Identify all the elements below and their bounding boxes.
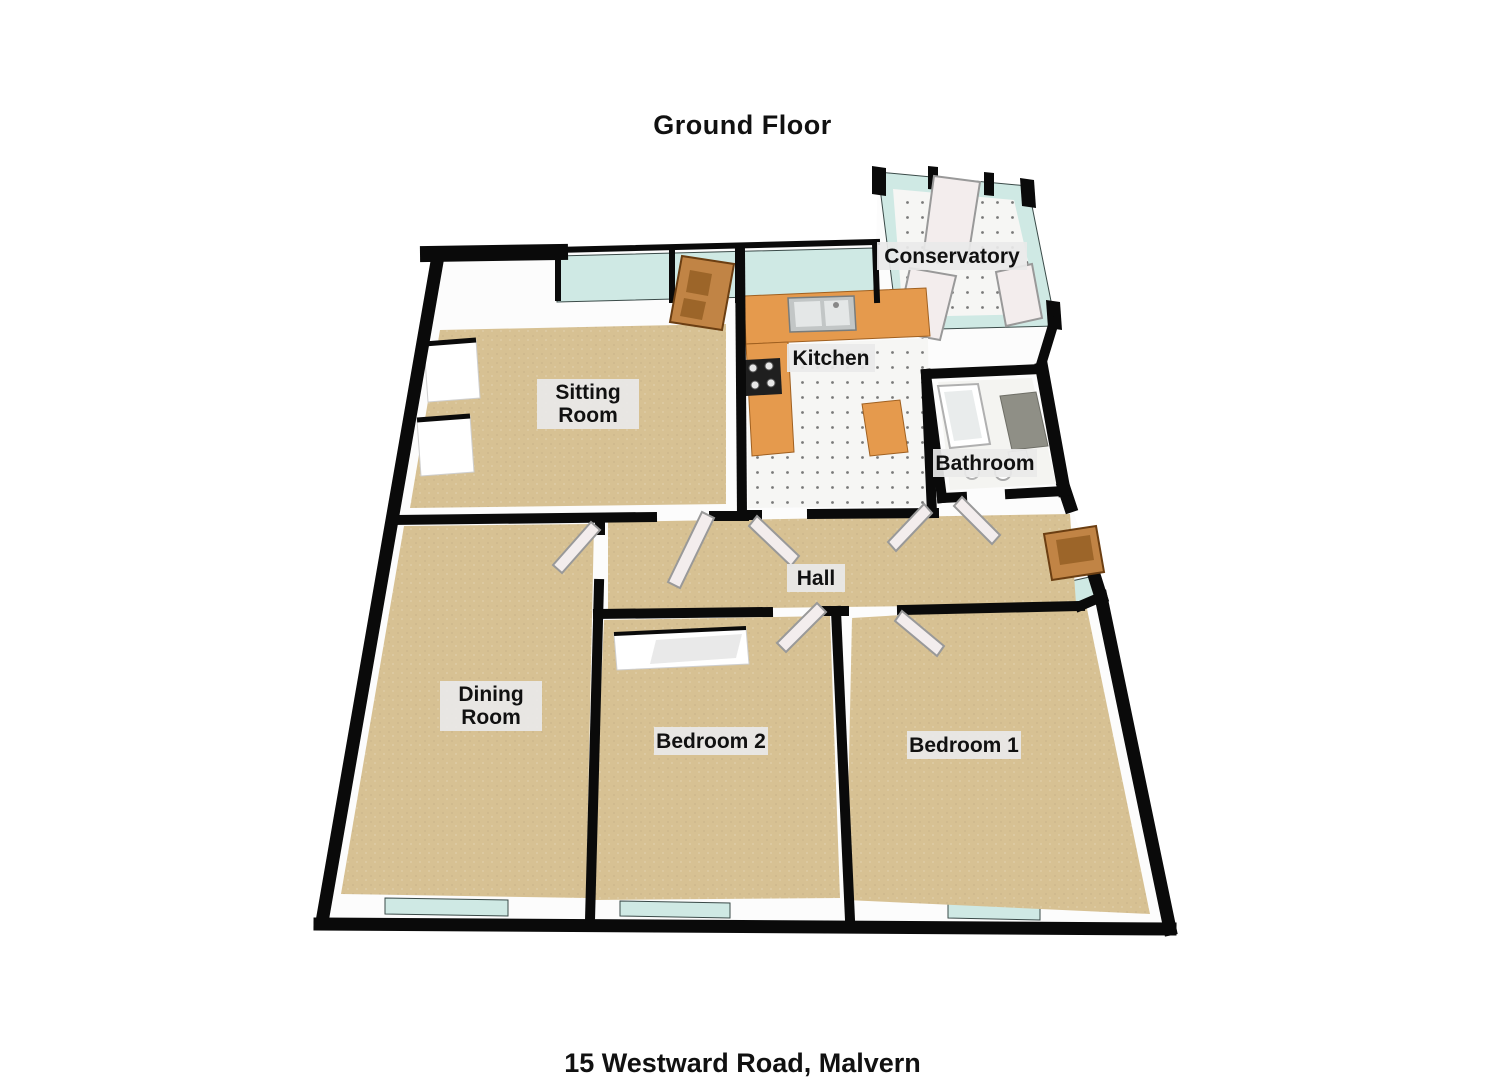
kitchen-counter-right <box>862 400 908 456</box>
label-dining-room-line2: Room <box>461 706 521 729</box>
stove-hob <box>744 358 782 396</box>
door-panel <box>686 270 712 296</box>
wall-segment <box>598 612 768 614</box>
door-panel <box>1056 535 1094 565</box>
sink-faucet <box>833 302 839 308</box>
wall-segment <box>926 369 1042 374</box>
wall-segment <box>902 606 1080 610</box>
label-sitting: Sitting <box>555 381 620 404</box>
wall-segment <box>1010 491 1064 494</box>
label-kitchen: Kitchen <box>792 347 869 370</box>
sink-basin <box>794 301 822 327</box>
label-conservatory: Conservatory <box>884 245 1020 268</box>
chimney-breast <box>417 416 474 476</box>
label-bathroom: Bathroom <box>935 452 1034 475</box>
room-label-bedroom-2: Bedroom 2 <box>654 727 768 755</box>
room-label-sitting-room: Sitting Room <box>537 379 639 429</box>
label-bedroom-1: Bedroom 1 <box>909 734 1019 757</box>
wall-segment <box>428 252 560 254</box>
wall-segment <box>740 252 742 516</box>
room-label-bedroom-1: Bedroom 1 <box>907 731 1021 759</box>
label-hall: Hall <box>797 567 836 590</box>
room-label-conservatory: Conservatory <box>877 242 1027 270</box>
conservatory-post <box>984 172 994 196</box>
burner <box>749 364 757 372</box>
wall-segment <box>942 497 962 498</box>
floor-plan-figure: Conservatory Kitchen Sitting Room Bathro… <box>0 0 1485 1080</box>
dining-window-glass <box>385 898 508 916</box>
room-label-bathroom: Bathroom <box>933 449 1037 477</box>
conservatory-post <box>872 166 886 196</box>
label-dining: Dining <box>458 683 523 706</box>
bedroom2-window-glass <box>620 901 730 918</box>
bedroom2-wardrobe <box>614 628 749 670</box>
burner <box>767 379 775 387</box>
property-address: 15 Westward Road, Malvern <box>0 1048 1485 1079</box>
conservatory-post <box>1020 178 1036 208</box>
label-bedroom-2: Bedroom 2 <box>656 730 766 753</box>
burner <box>765 362 773 370</box>
wall-segment <box>396 517 652 520</box>
room-label-hall: Hall <box>787 564 845 592</box>
burner <box>751 381 759 389</box>
chimney-breast <box>424 340 480 402</box>
wall-segment <box>320 924 1170 929</box>
label-sitting-room-line2: Room <box>558 404 618 427</box>
room-label-dining-room: Dining Room <box>440 681 542 731</box>
floor-plan-page: Ground Floor <box>0 0 1485 1080</box>
wall-segment <box>875 244 877 300</box>
room-label-kitchen: Kitchen <box>787 344 875 372</box>
door-panel <box>680 298 706 320</box>
